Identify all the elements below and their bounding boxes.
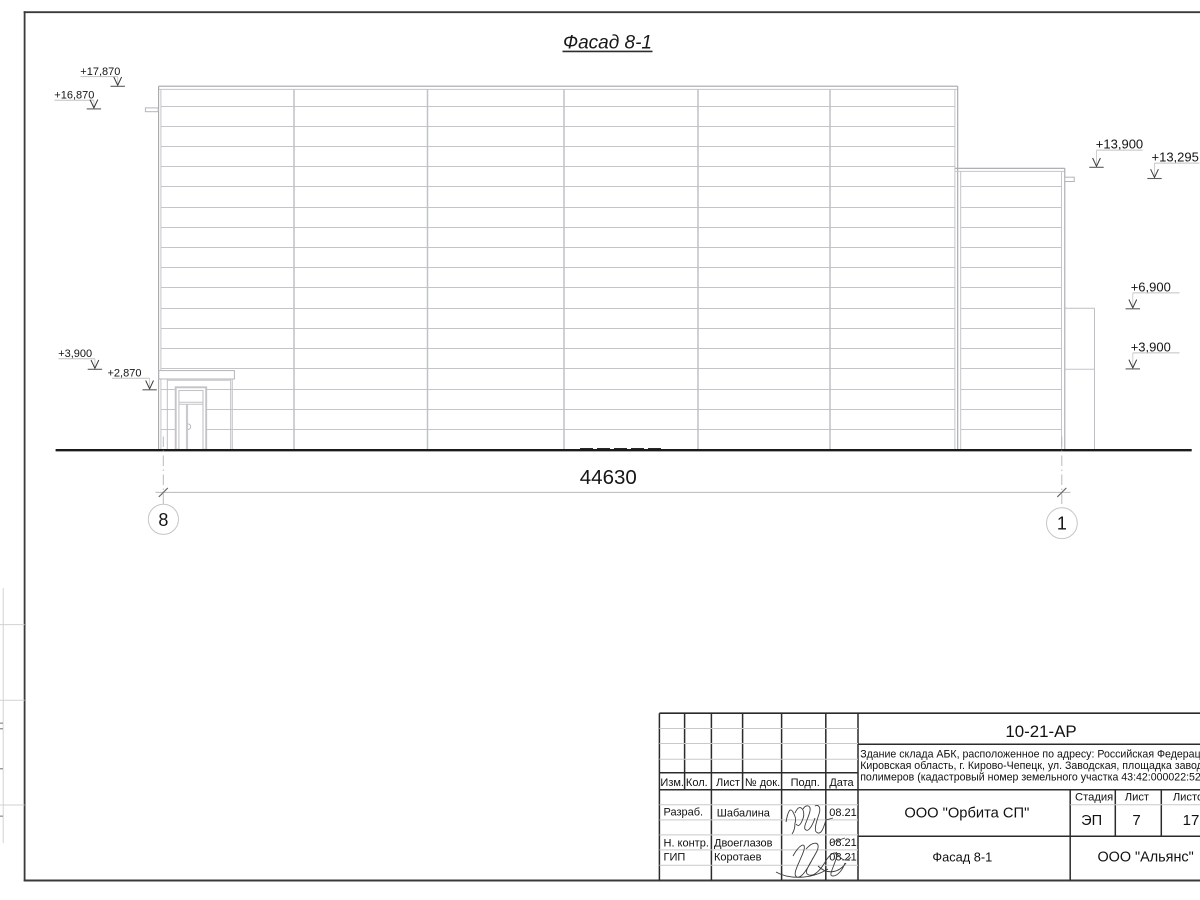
svg-text:1: 1 (1057, 514, 1067, 534)
svg-text:08.21: 08.21 (829, 807, 857, 819)
svg-text:Лист: Лист (1125, 791, 1149, 803)
svg-text:ООО "Орбита СП": ООО "Орбита СП" (904, 806, 1029, 822)
svg-text:Коротаев: Коротаев (714, 852, 762, 864)
svg-text:44630: 44630 (580, 466, 637, 489)
svg-text:8: 8 (158, 510, 168, 530)
svg-text:Здание склада АБК, расположенн: Здание склада АБК, расположенное по адре… (860, 749, 1200, 784)
svg-text:Кол.: Кол. (686, 777, 708, 789)
svg-text:Листов: Листов (1173, 791, 1200, 803)
svg-text:Фасад 8-1: Фасад 8-1 (932, 850, 992, 865)
svg-text:Лист: Лист (716, 777, 740, 789)
svg-text:ЭП: ЭП (1081, 813, 1102, 829)
svg-text:+6,900: +6,900 (1131, 279, 1171, 294)
svg-text:Шабалина: Шабалина (717, 807, 771, 819)
svg-text:ООО "Альянс": ООО "Альянс" (1097, 850, 1193, 866)
svg-text:Стадия: Стадия (1075, 791, 1113, 803)
svg-text:№ док.: № док. (745, 777, 780, 789)
svg-text:Подп.: Подп. (791, 777, 820, 789)
svg-text:Двоеглазов: Двоеглазов (714, 838, 773, 850)
svg-text:+13,295: +13,295 (1152, 150, 1199, 165)
svg-text:Н. контр.: Н. контр. (664, 838, 709, 850)
svg-text:ГИП: ГИП (664, 852, 686, 864)
svg-text:+13,900: +13,900 (1096, 137, 1143, 152)
svg-text:7: 7 (1132, 812, 1140, 829)
svg-text:Разраб.: Разраб. (664, 807, 704, 819)
svg-text:Дата: Дата (829, 777, 854, 789)
svg-text:Изм.: Изм. (660, 777, 684, 789)
svg-text:+3,900: +3,900 (1131, 339, 1171, 354)
svg-text:Фасад 8-1: Фасад 8-1 (563, 33, 652, 54)
svg-text:10-21-АР: 10-21-АР (1005, 722, 1076, 741)
svg-text:17: 17 (1183, 812, 1200, 829)
